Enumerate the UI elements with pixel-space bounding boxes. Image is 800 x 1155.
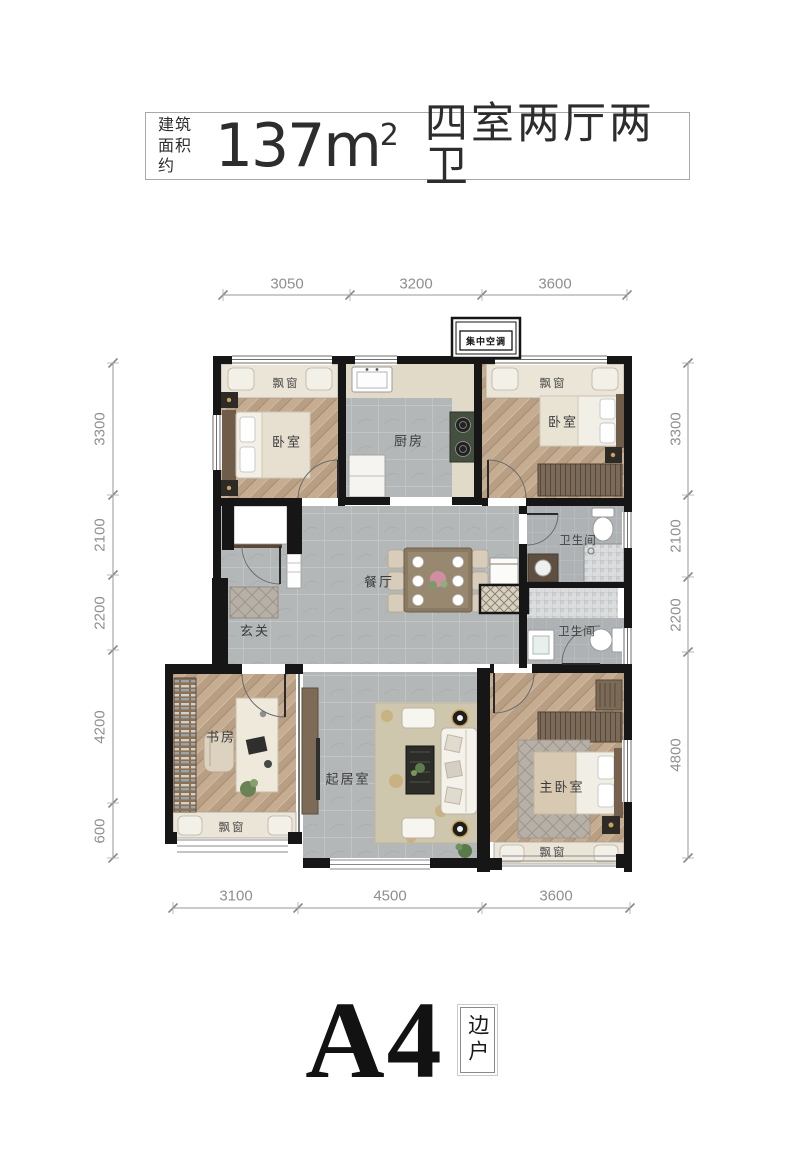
header-banner: 建筑 面积约 137m2 四室两厅两卫 (145, 112, 690, 180)
bay-window-label: 飘窗 (540, 375, 567, 391)
dim-right-2: 2100 (668, 519, 685, 552)
area-value: 137m2 (215, 116, 399, 176)
room-label-bedroom-top-left: 卧室 (272, 432, 302, 451)
dim-top-1: 3050 (270, 276, 303, 293)
bay-window-label: 飘窗 (540, 844, 567, 860)
dim-left-1: 3300 (92, 412, 109, 445)
bay-window-label: 飘窗 (273, 375, 300, 391)
footer-unit-block: A4 边户 (0, 985, 800, 1095)
room-label-study: 书房 (206, 727, 236, 746)
dim-left-4: 4200 (92, 710, 109, 743)
room-label-master-bedroom: 主卧室 (539, 777, 584, 796)
room-label-living: 起居室 (325, 769, 370, 788)
hvac-label: 集中空调 (466, 335, 506, 348)
dim-bottom-2: 4500 (373, 888, 406, 905)
dim-top-2: 3200 (399, 276, 432, 293)
dim-bottom-3: 3600 (539, 888, 572, 905)
dim-left-3: 2200 (92, 596, 109, 629)
area-prefix-line1: 建筑 (158, 115, 207, 136)
room-label-kitchen: 厨房 (394, 431, 424, 450)
unit-name: A4 (305, 985, 443, 1095)
unit-tag-badge: 边户 (460, 1007, 495, 1073)
dim-left-2: 2100 (92, 518, 109, 551)
floorplan-poster: 建筑 面积约 137m2 四室两厅两卫 集中空调 飘窗 飘窗 飘窗 飘窗 卧室 … (0, 0, 800, 1155)
bay-window-label: 飘窗 (219, 819, 246, 835)
dim-right-4: 4800 (668, 738, 685, 771)
room-label-dining: 餐厅 (364, 572, 394, 591)
dim-top-3: 3600 (538, 276, 571, 293)
area-prefix: 建筑 面积约 (158, 115, 207, 177)
room-label-bathroom-lower: 卫生间 (558, 623, 596, 639)
dim-right-1: 3300 (668, 412, 685, 445)
room-label-bathroom-upper: 卫生间 (559, 532, 597, 548)
dim-right-3: 2200 (668, 598, 685, 631)
layout-text: 四室两厅两卫 (425, 103, 689, 189)
room-label-bedroom-top-right: 卧室 (548, 412, 578, 431)
room-label-foyer: 玄关 (240, 621, 270, 640)
dim-left-5: 600 (92, 818, 109, 843)
area-superscript: 2 (380, 118, 399, 153)
area-prefix-line2: 面积约 (158, 136, 207, 178)
dim-bottom-1: 3100 (219, 888, 252, 905)
